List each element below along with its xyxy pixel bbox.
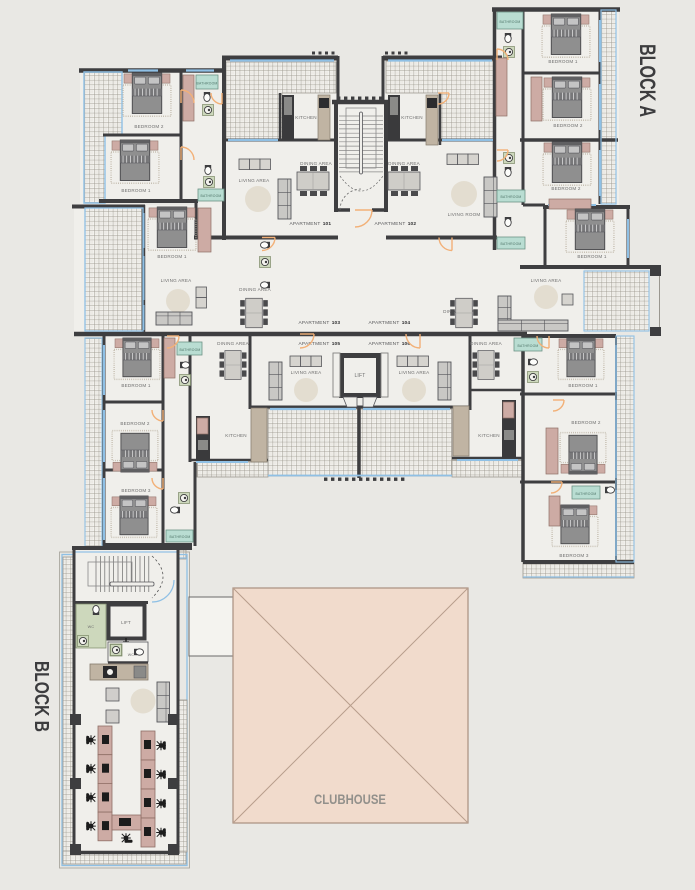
svg-text:102: 102 xyxy=(408,221,417,227)
svg-text:BATHROOM: BATHROOM xyxy=(500,20,521,24)
svg-text:DINING AREA: DINING AREA xyxy=(300,161,333,166)
svg-text:BATHROOM: BATHROOM xyxy=(170,535,191,539)
svg-text:DINING AREA: DINING AREA xyxy=(217,341,250,346)
svg-text:WC: WC xyxy=(128,653,135,657)
svg-text:101: 101 xyxy=(323,221,332,227)
svg-text:LIVING AREA: LIVING AREA xyxy=(239,178,271,183)
svg-text:LIFT: LIFT xyxy=(121,620,131,625)
svg-text:BEDROOM 1: BEDROOM 1 xyxy=(121,383,151,388)
svg-text:BEDROOM 2: BEDROOM 2 xyxy=(553,123,583,128)
svg-text:LIFT: LIFT xyxy=(354,373,365,379)
svg-text:BEDROOM 2: BEDROOM 2 xyxy=(551,186,581,191)
svg-text:LIVING AREA: LIVING AREA xyxy=(399,370,431,375)
svg-text:103: 103 xyxy=(332,320,341,326)
svg-text:105: 105 xyxy=(332,341,341,347)
svg-text:BATHROOM: BATHROOM xyxy=(197,82,218,86)
svg-text:DINING AREA: DINING AREA xyxy=(470,341,503,346)
svg-text:BEDROOM 1: BEDROOM 1 xyxy=(577,254,607,259)
svg-text:KITCHEN: KITCHEN xyxy=(401,115,423,120)
svg-text:APARTMENT: APARTMENT xyxy=(299,320,330,326)
svg-text:APARTMENT: APARTMENT xyxy=(290,221,321,227)
svg-text:BEDROOM 1: BEDROOM 1 xyxy=(568,383,598,388)
svg-text:BATHROOM: BATHROOM xyxy=(501,242,522,246)
svg-text:DINING AREA: DINING AREA xyxy=(388,161,421,166)
svg-text:APARTMENT: APARTMENT xyxy=(299,341,330,347)
svg-text:BATHROOM: BATHROOM xyxy=(518,344,539,348)
svg-text:KITCHEN: KITCHEN xyxy=(295,115,317,120)
svg-text:BATHROOM: BATHROOM xyxy=(576,492,597,496)
svg-text:LIVING AREA: LIVING AREA xyxy=(291,370,323,375)
svg-text:WC: WC xyxy=(88,625,95,629)
svg-text:BEDROOM 1: BEDROOM 1 xyxy=(157,254,187,259)
svg-text:CLUBHOUSE: CLUBHOUSE xyxy=(314,792,386,807)
svg-text:BATHROOM: BATHROOM xyxy=(501,195,522,199)
svg-text:LIVING ROOM: LIVING ROOM xyxy=(448,212,481,217)
svg-text:BEDROOM 2: BEDROOM 2 xyxy=(134,124,164,129)
svg-text:APARTMENT: APARTMENT xyxy=(369,341,400,347)
svg-text:104: 104 xyxy=(402,320,411,326)
svg-text:KITCHEN: KITCHEN xyxy=(225,433,247,438)
svg-text:BATHROOM: BATHROOM xyxy=(201,194,222,198)
svg-text:BLOCK A: BLOCK A xyxy=(635,44,660,117)
svg-text:LIVING AREA: LIVING AREA xyxy=(531,278,563,283)
svg-text:BEDROOM 2: BEDROOM 2 xyxy=(120,421,150,426)
svg-text:KITCHEN: KITCHEN xyxy=(478,433,500,438)
svg-text:BEDROOM 1: BEDROOM 1 xyxy=(548,59,578,64)
svg-text:BEDROOM 3: BEDROOM 3 xyxy=(559,553,589,558)
svg-text:BEDROOM 1: BEDROOM 1 xyxy=(121,188,151,193)
svg-text:BEDROOM 3: BEDROOM 3 xyxy=(121,488,151,493)
svg-text:BEDROOM 2: BEDROOM 2 xyxy=(571,420,601,425)
svg-text:APARTMENT: APARTMENT xyxy=(369,320,400,326)
svg-text:BLOCK B: BLOCK B xyxy=(30,661,52,732)
svg-text:APARTMENT: APARTMENT xyxy=(375,221,406,227)
svg-text:LIVING AREA: LIVING AREA xyxy=(161,278,193,283)
svg-text:BATHROOM: BATHROOM xyxy=(180,348,201,352)
